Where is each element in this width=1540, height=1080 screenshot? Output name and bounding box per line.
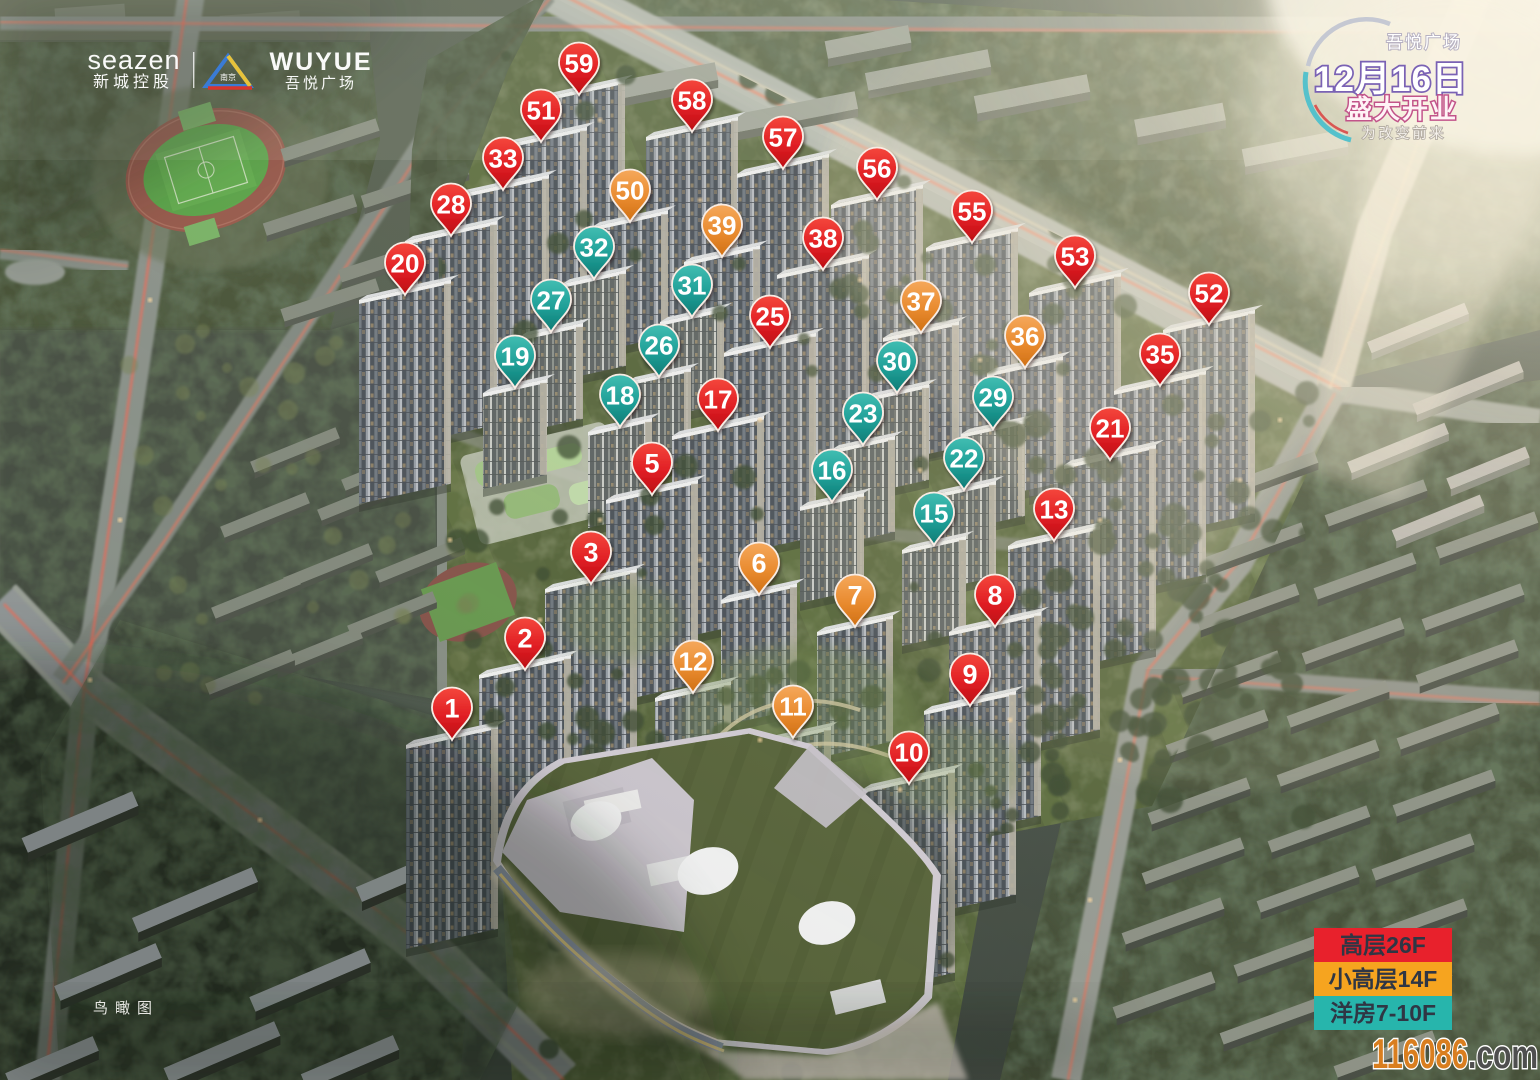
svg-text:20: 20 xyxy=(391,249,420,279)
svg-text:57: 57 xyxy=(769,123,798,153)
svg-text:11: 11 xyxy=(779,692,807,722)
svg-text:17: 17 xyxy=(704,385,733,415)
svg-text:12: 12 xyxy=(679,647,708,677)
svg-text:小高层14F: 小高层14F xyxy=(1329,966,1438,992)
svg-text:洋房7-10F: 洋房7-10F xyxy=(1330,1000,1436,1026)
svg-text:55: 55 xyxy=(958,197,987,227)
svg-text:WUYUE: WUYUE xyxy=(269,48,372,76)
svg-text:15: 15 xyxy=(920,499,949,529)
svg-text:39: 39 xyxy=(708,211,737,241)
svg-text:59: 59 xyxy=(565,49,594,79)
svg-text:1: 1 xyxy=(444,694,459,724)
svg-text:6: 6 xyxy=(751,549,766,579)
svg-text:吾悦广场: 吾悦广场 xyxy=(285,75,357,92)
svg-text:7: 7 xyxy=(847,581,862,611)
svg-text:8: 8 xyxy=(987,581,1002,611)
svg-text:21: 21 xyxy=(1096,414,1125,444)
svg-text:52: 52 xyxy=(1195,279,1224,309)
svg-text:2: 2 xyxy=(517,624,532,654)
svg-text:吾悦广场: 吾悦广场 xyxy=(1386,33,1462,52)
svg-text:seazen: seazen xyxy=(87,45,180,75)
svg-text:31: 31 xyxy=(678,271,707,301)
svg-text:16: 16 xyxy=(818,456,847,486)
svg-text:50: 50 xyxy=(616,176,645,206)
svg-text:37: 37 xyxy=(907,287,936,317)
svg-text:53: 53 xyxy=(1061,242,1090,272)
svg-text:鸟瞰图: 鸟瞰图 xyxy=(93,1000,159,1017)
svg-text:23: 23 xyxy=(849,399,878,429)
svg-text:19: 19 xyxy=(501,342,530,372)
svg-text:51: 51 xyxy=(527,96,556,126)
svg-text:13: 13 xyxy=(1040,495,1069,525)
svg-text:3: 3 xyxy=(583,538,598,568)
svg-text:10: 10 xyxy=(895,738,924,768)
svg-text:58: 58 xyxy=(678,86,707,116)
svg-text:38: 38 xyxy=(809,224,838,254)
svg-text:27: 27 xyxy=(537,286,566,316)
svg-text:9: 9 xyxy=(962,660,977,690)
svg-text:高层26F: 高层26F xyxy=(1340,932,1426,958)
svg-text:南京: 南京 xyxy=(220,72,236,82)
svg-text:35: 35 xyxy=(1146,340,1175,370)
svg-text:56: 56 xyxy=(863,154,892,184)
svg-text:32: 32 xyxy=(580,233,609,263)
svg-text:25: 25 xyxy=(756,302,785,332)
svg-text:26: 26 xyxy=(645,331,674,361)
svg-text:新城控股: 新城控股 xyxy=(93,73,173,91)
svg-text:盛大开业: 盛大开业 xyxy=(1346,94,1458,124)
svg-text:29: 29 xyxy=(979,383,1008,413)
svg-text:36: 36 xyxy=(1011,322,1040,352)
svg-text:18: 18 xyxy=(606,381,635,411)
svg-text:30: 30 xyxy=(883,347,912,377)
svg-text:28: 28 xyxy=(437,190,466,220)
svg-text:116086: 116086 xyxy=(1372,1030,1468,1077)
svg-text:33: 33 xyxy=(489,144,518,174)
svg-text:为改变前来: 为改变前来 xyxy=(1362,125,1447,141)
svg-text:.com: .com xyxy=(1468,1033,1538,1077)
svg-text:5: 5 xyxy=(644,449,659,479)
svg-text:22: 22 xyxy=(950,444,979,474)
